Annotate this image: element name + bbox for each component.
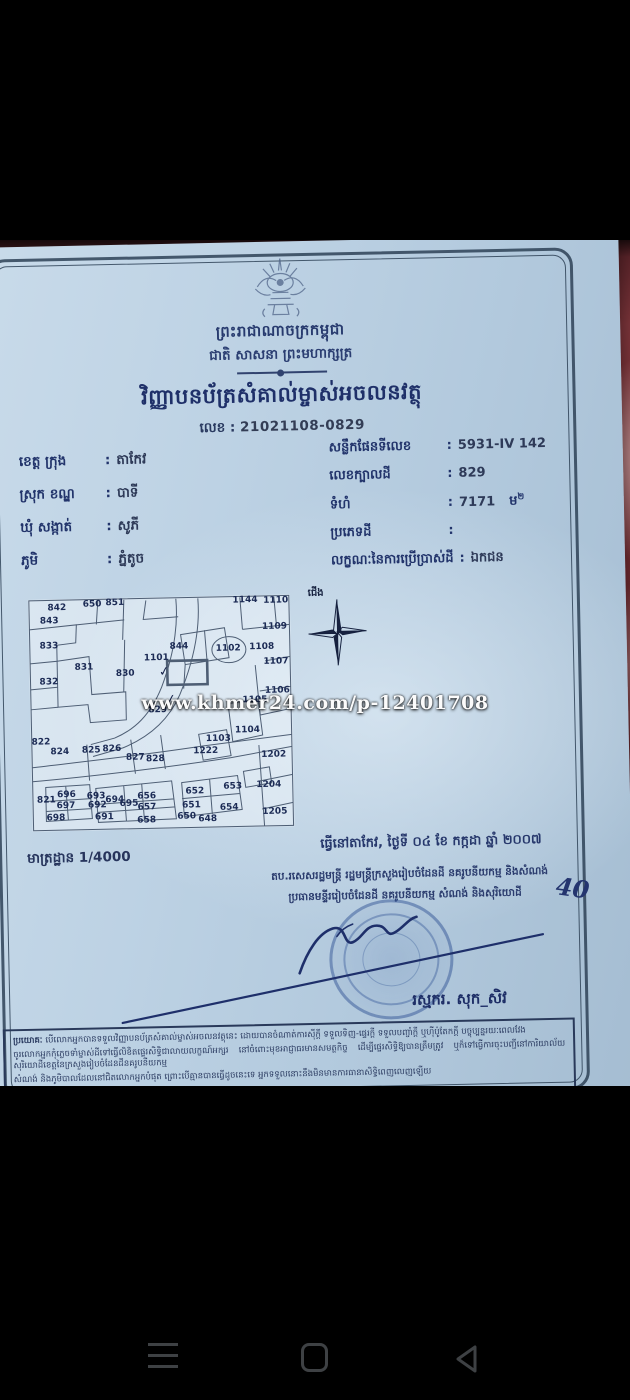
- field-colon: :: [441, 466, 459, 481]
- parcel-label: 691: [95, 812, 114, 822]
- field-value: 829: [458, 465, 485, 481]
- royal-arms-emblem: [250, 256, 311, 319]
- parcel-label: 698: [46, 813, 65, 823]
- field-label: ប្រភេទដី: [330, 522, 442, 543]
- parcel-label: 1104: [235, 725, 260, 736]
- parcel-label: 1110: [263, 595, 288, 606]
- field-colon: :: [441, 438, 459, 453]
- map-scale-label: មាត្រដ្ឋាន 1/4000: [27, 848, 131, 870]
- field-value: 7171: [459, 494, 495, 510]
- field-colon: :: [99, 485, 117, 501]
- android-nav-bar: [0, 1086, 630, 1400]
- parcel-label: 1103: [206, 733, 231, 744]
- parcel-label: 832: [39, 677, 58, 687]
- field-value: ភ្នំតូច: [118, 550, 144, 567]
- field-label: ទំហំ: [330, 494, 442, 515]
- parcel-checkmark: ✓: [158, 664, 171, 681]
- field-value: សូភី: [118, 518, 140, 534]
- field-row: ប្រភេទដី:: [330, 520, 580, 544]
- parcel-label: 650: [177, 811, 196, 821]
- field-colon: :: [100, 518, 118, 534]
- field-unit-sup: ២: [517, 492, 524, 502]
- location-fields: ខេត្ត ក្រុង:តាកែវស្រុក ខណ្ឌ:បាទីឃុំ សង្ក…: [19, 448, 272, 585]
- field-label: លេខក្បាលដី: [329, 465, 441, 486]
- parcel-label: 692: [88, 801, 107, 811]
- parcel-label: 696: [57, 790, 76, 800]
- home-square-icon: [301, 1343, 328, 1372]
- parcel-label: 653: [223, 781, 242, 791]
- field-value: 5931-IV 142: [458, 436, 546, 453]
- parcel-label: 843: [40, 616, 59, 626]
- status-bar: [0, 0, 630, 240]
- parcel-label: 1144: [232, 595, 257, 606]
- parcel-label: 651: [182, 800, 201, 810]
- parcel-label: 825: [82, 745, 101, 755]
- signature: [100, 876, 563, 1036]
- parcel-label: 844: [169, 642, 188, 652]
- parcel-label: 1107: [263, 656, 288, 667]
- parcel-label: 650: [83, 599, 102, 609]
- parcel-label: 695: [120, 799, 139, 809]
- parcel-label: 1109: [262, 621, 287, 632]
- compass-rose: ជើង: [302, 585, 374, 676]
- field-label: ស្រុក ខណ្ឌ: [19, 484, 99, 506]
- parcel-label: 648: [198, 814, 217, 824]
- field-row: ទំហំ:7171ម២: [330, 490, 580, 516]
- parcel-label: 826: [102, 744, 121, 754]
- phone-screen: { "colors": {"paper": "#bdd2e4", "ink": …: [0, 0, 630, 1400]
- document-photo: ព្រះរាជាណាចក្រកម្ពុជា ជាតិ សាសនា ព្រះមហា…: [0, 240, 630, 1086]
- field-colon: :: [99, 452, 117, 468]
- parcel-label: 833: [39, 641, 58, 651]
- parcel-label: 1202: [261, 750, 286, 761]
- parcel-label: 1204: [256, 780, 281, 791]
- parcel-label: 830: [116, 669, 135, 679]
- field-value: តាកែវ: [116, 451, 146, 468]
- field-unit: ម២: [509, 494, 524, 509]
- hamburger-menu-icon: [148, 1343, 178, 1346]
- certificate-paper: ព្រះរាជាណាចក្រកម្ពុជា ជាតិ សាសនា ព្រះមហា…: [0, 240, 630, 1086]
- home-button[interactable]: [301, 1343, 335, 1375]
- certificate-number-value: 21021108-0829: [240, 417, 365, 436]
- field-row: ខេត្ត ក្រុង:តាកែវ: [19, 448, 269, 473]
- parcel-label: 831: [74, 663, 93, 673]
- signer-name: រស្មករ. សុក_សិវ: [412, 989, 507, 1013]
- parcel-label: 656: [137, 791, 156, 801]
- field-row: សន្លឹកផែនទីលេខ:5931-IV 142: [329, 434, 579, 458]
- parcel-label: 654: [220, 803, 239, 813]
- parcel-fields: សន្លឹកផែនទីលេខ:5931-IV 142លេខក្បាលដី:829…: [329, 434, 582, 581]
- parcel-label: 1108: [249, 642, 274, 653]
- parcel-label: 697: [56, 801, 75, 811]
- parcel-label: 822: [32, 738, 51, 748]
- parcel-label: 658: [137, 815, 156, 825]
- field-value: បាទី: [117, 485, 139, 501]
- parcel-label: 827: [126, 753, 145, 763]
- parcel-label: 1205: [262, 807, 287, 818]
- field-label: លក្ខណៈនៃការប្រើប្រាស់ដី: [331, 550, 454, 572]
- back-triangle-icon: [452, 1343, 484, 1375]
- field-row: ស្រុក ខណ្ឌ:បាទី: [19, 481, 269, 506]
- field-row: លក្ខណៈនៃការប្រើប្រាស់ដី:ឯកជន: [331, 548, 581, 572]
- field-colon: :: [101, 551, 119, 567]
- compass-star-icon: [306, 597, 369, 668]
- parcel-label: 657: [137, 802, 156, 812]
- parcel-label: 828: [146, 754, 165, 764]
- field-label: ភូមិ: [21, 550, 101, 572]
- field-colon: :: [442, 523, 460, 538]
- footer-intro: ប្រយោគៈ: [13, 1036, 46, 1047]
- parcel-label: 1101: [144, 653, 169, 664]
- hamburger-menu-icon: [148, 1354, 178, 1357]
- parcel-label: 1102: [216, 643, 241, 654]
- field-row: ឃុំ សង្កាត់:សូភី: [20, 514, 270, 539]
- parcel-label: 842: [47, 603, 66, 613]
- field-colon: :: [453, 551, 471, 566]
- field-label: សន្លឹកផែនទីលេខ: [329, 437, 441, 458]
- hamburger-menu-icon: [148, 1365, 178, 1368]
- field-row: ភូមិ:ភ្នំតូច: [21, 547, 271, 572]
- parcel-label: 821: [37, 795, 56, 805]
- parcel-label: 851: [105, 598, 124, 608]
- watermark-text: www.khmer24.com/p-12401708: [0, 692, 630, 714]
- menu-button[interactable]: [148, 1343, 182, 1375]
- parcel-label: 824: [50, 747, 69, 757]
- field-label: ឃុំ សង្កាត់: [20, 517, 100, 539]
- field-value: ឯកជន: [471, 550, 504, 566]
- certificate-number-label: លេខ :: [199, 419, 235, 436]
- field-row: លេខក្បាលដី:829: [329, 462, 579, 486]
- field-label: ខេត្ត ក្រុង: [19, 451, 99, 473]
- parcel-label: 652: [185, 786, 204, 796]
- parcel-label: 1222: [193, 746, 218, 757]
- footer-warning-box: ប្រយោគៈ បើលោកអ្នកបានទទួលវិញ្ញាបនប័ត្រសំគ…: [3, 1017, 576, 1086]
- field-colon: :: [442, 495, 460, 510]
- back-button[interactable]: [452, 1343, 486, 1375]
